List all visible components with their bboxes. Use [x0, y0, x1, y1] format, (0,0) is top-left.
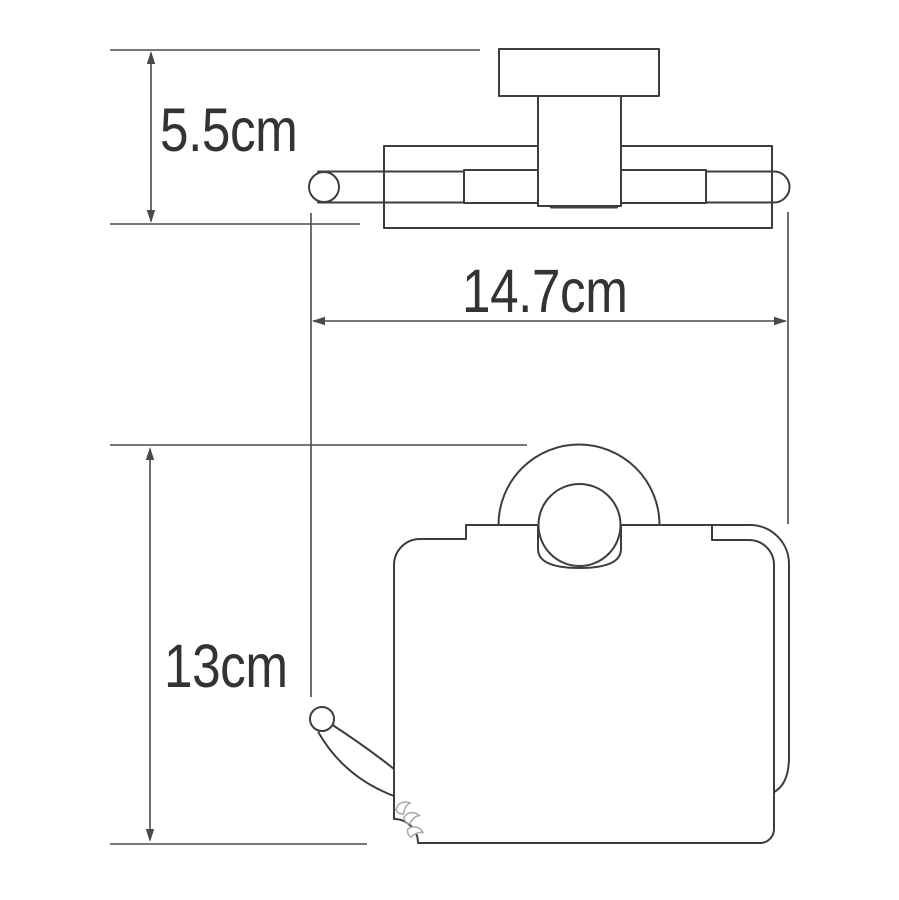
dimension-label-bracket-depth: 5.5cm: [160, 100, 297, 161]
roller-sleeve-left: [464, 170, 538, 203]
roller-bar-right-cap: [774, 172, 790, 203]
arrow-left-icon: [312, 317, 325, 325]
wall-plate: [499, 49, 659, 96]
arrow-up-icon: [146, 447, 154, 460]
arrow-down-icon: [146, 829, 154, 842]
arrow-down-icon: [147, 210, 155, 223]
roller-bar-left-cap: [309, 172, 339, 202]
hook-ball: [310, 707, 334, 731]
cover-lid: [394, 539, 774, 843]
top-view-drawing: [309, 49, 790, 228]
front-view-drawing: [310, 445, 789, 843]
technical-drawing-canvas: [0, 0, 899, 900]
dimension-label-overall-width: 14.7cm: [462, 261, 628, 322]
spindle-hub: [539, 484, 621, 566]
roller-sleeve-right: [621, 170, 706, 203]
arrow-up-icon: [147, 51, 155, 64]
technical-drawing-page: 5.5cm 14.7cm 13cm: [0, 0, 899, 900]
bracket-post: [538, 96, 621, 206]
arrow-right-icon: [774, 317, 787, 325]
dimension-label-overall-height: 13cm: [164, 636, 288, 697]
